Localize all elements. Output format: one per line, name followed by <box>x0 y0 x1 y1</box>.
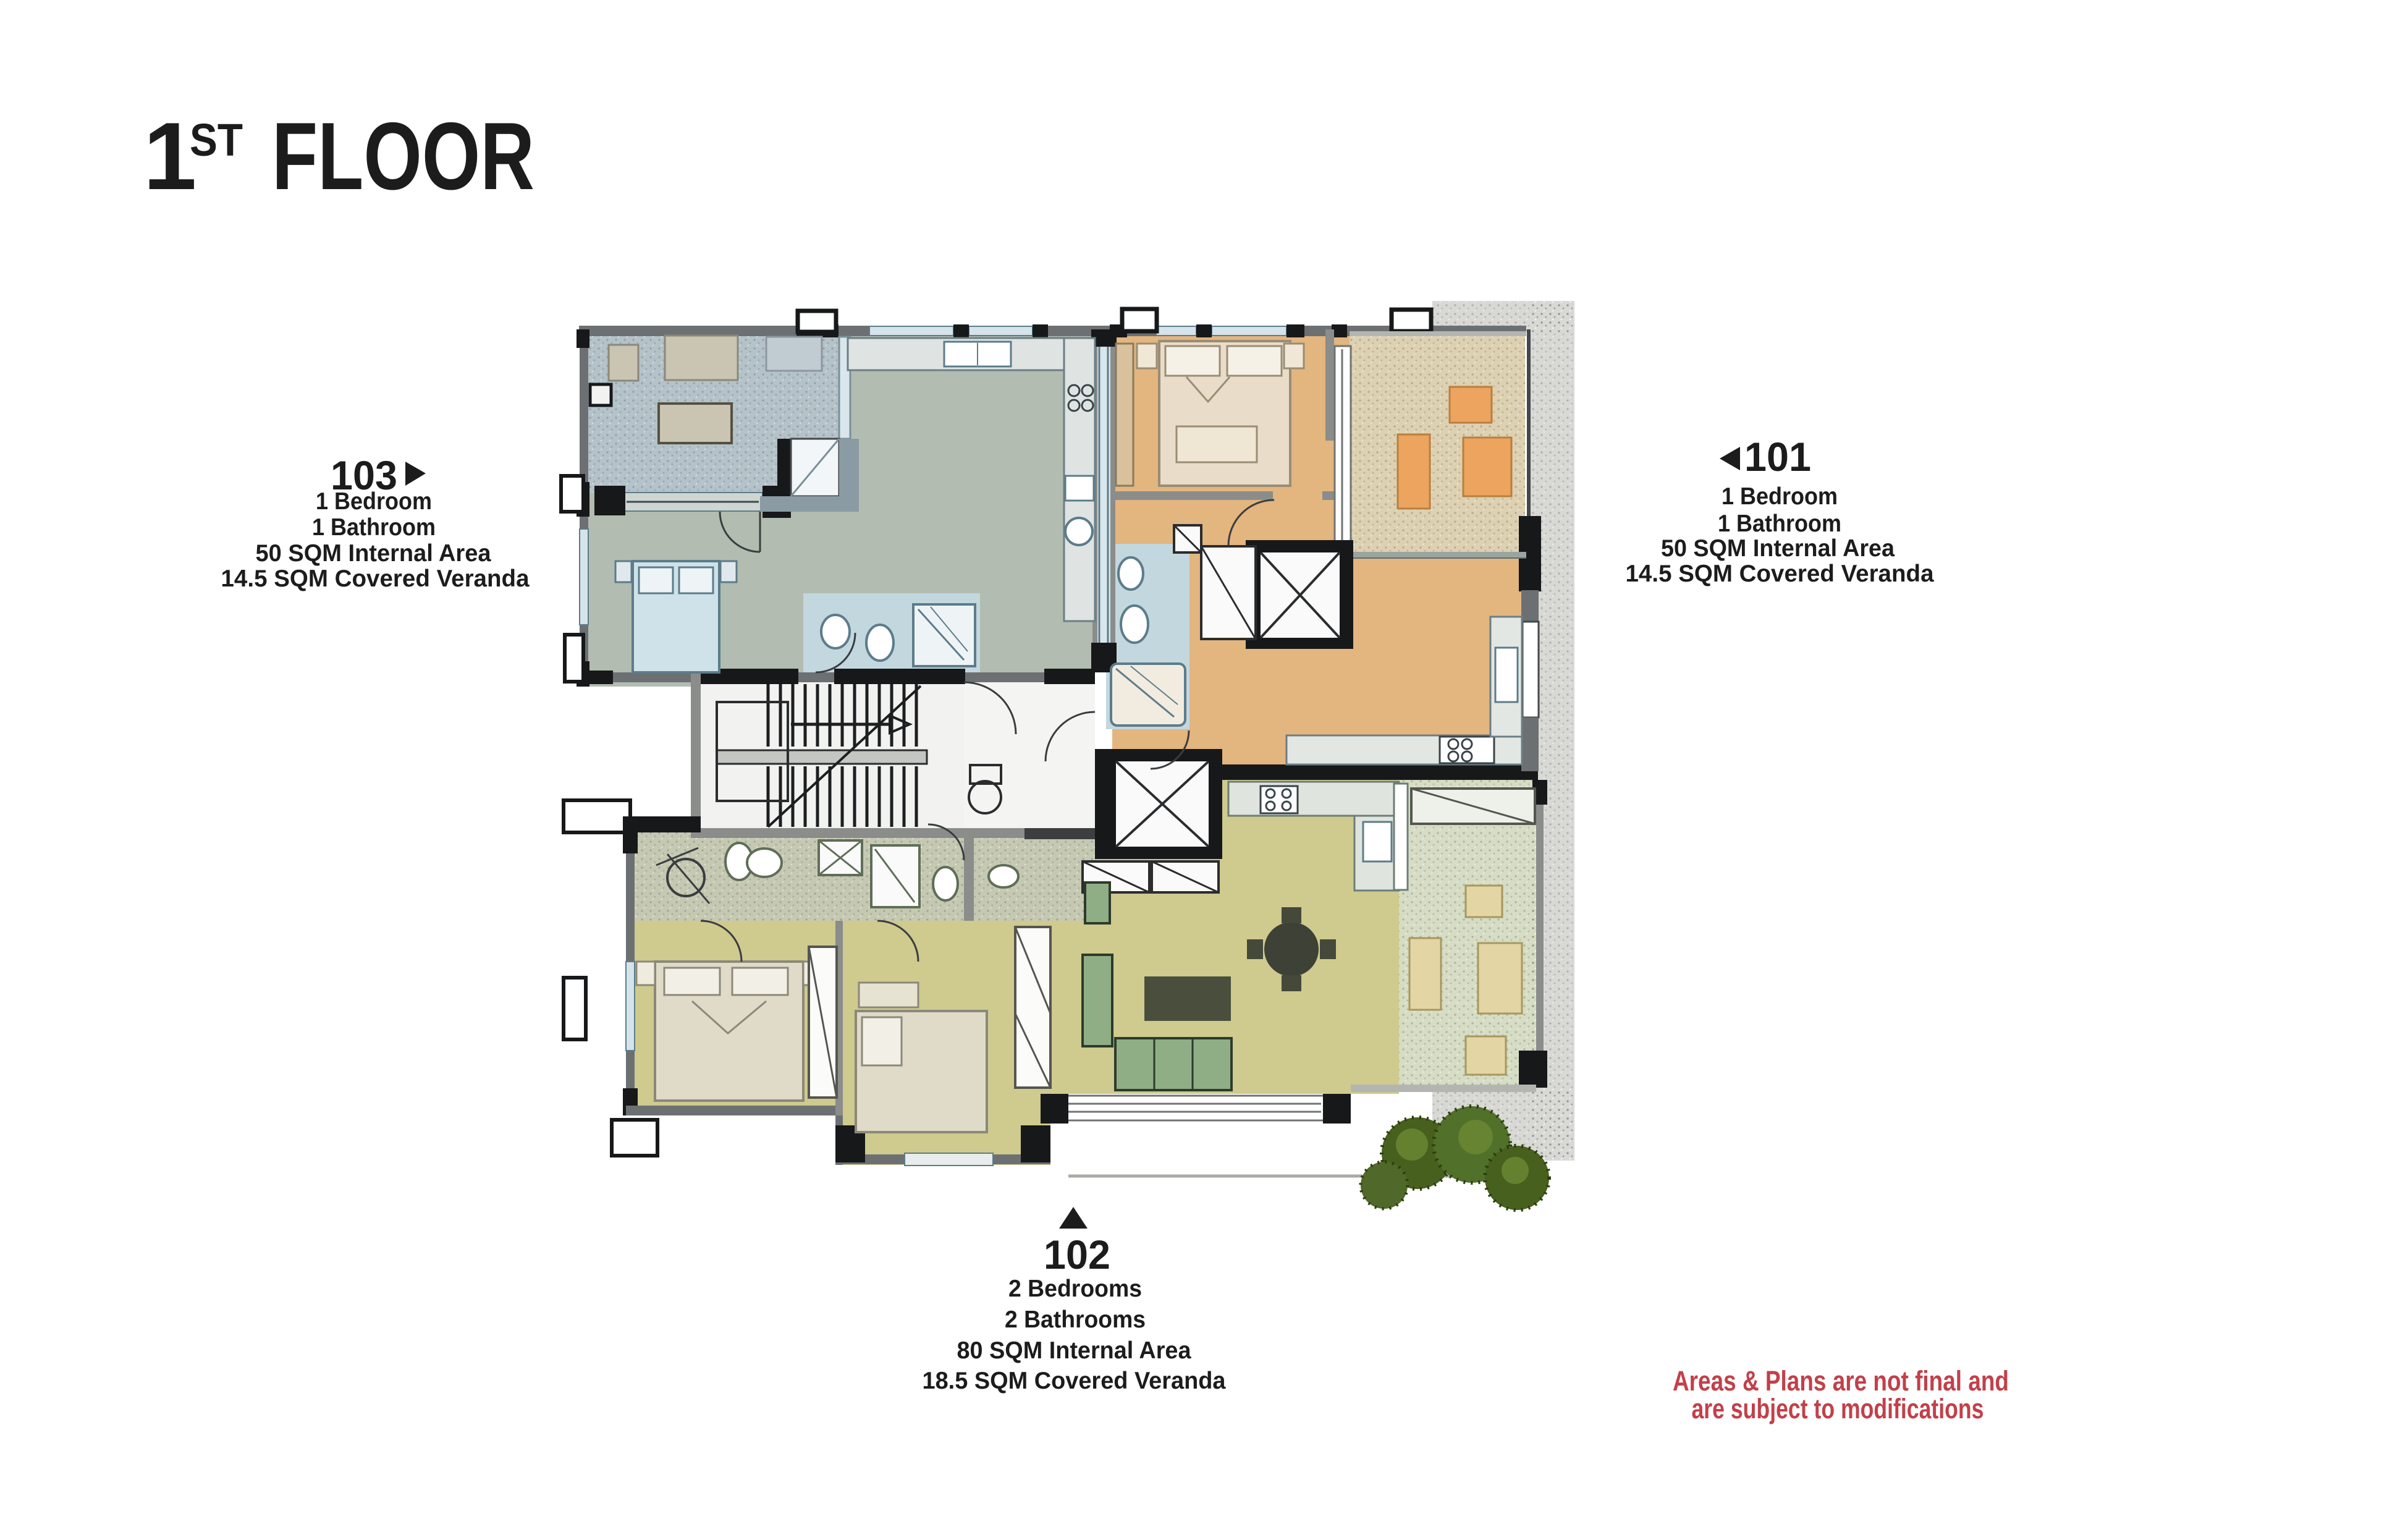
svg-text:1 Bedroom: 1 Bedroom <box>316 488 432 515</box>
svg-text:are subject to modifications: are subject to modifications <box>1692 1393 1984 1424</box>
svg-text:1 Bedroom: 1 Bedroom <box>1722 483 1838 510</box>
svg-text:18.5 SQM Covered Veranda: 18.5 SQM Covered Veranda <box>923 1368 1226 1394</box>
svg-text:101: 101 <box>1744 434 1811 480</box>
svg-text:1: 1 <box>143 103 196 209</box>
svg-text:1 Bathroom: 1 Bathroom <box>312 514 436 541</box>
svg-text:80 SQM Internal Area: 80 SQM Internal Area <box>957 1337 1191 1364</box>
svg-text:50 SQM Internal Area: 50 SQM Internal Area <box>1661 535 1895 562</box>
svg-text:FLOOR: FLOOR <box>272 103 534 209</box>
svg-text:ST: ST <box>190 114 243 166</box>
svg-text:14.5 SQM Covered Veranda: 14.5 SQM Covered Veranda <box>1626 561 1934 587</box>
svg-text:102: 102 <box>1044 1232 1110 1277</box>
svg-text:50 SQM Internal Area: 50 SQM Internal Area <box>256 540 491 567</box>
svg-text:1 Bathroom: 1 Bathroom <box>1718 510 1841 537</box>
svg-text:2 Bedrooms: 2 Bedrooms <box>1008 1276 1142 1302</box>
svg-text:Areas & Plans are not final an: Areas & Plans are not final and <box>1673 1365 2009 1397</box>
svg-text:2 Bathrooms: 2 Bathrooms <box>1005 1306 1146 1333</box>
svg-text:14.5 SQM Covered Veranda: 14.5 SQM Covered Veranda <box>221 565 530 592</box>
